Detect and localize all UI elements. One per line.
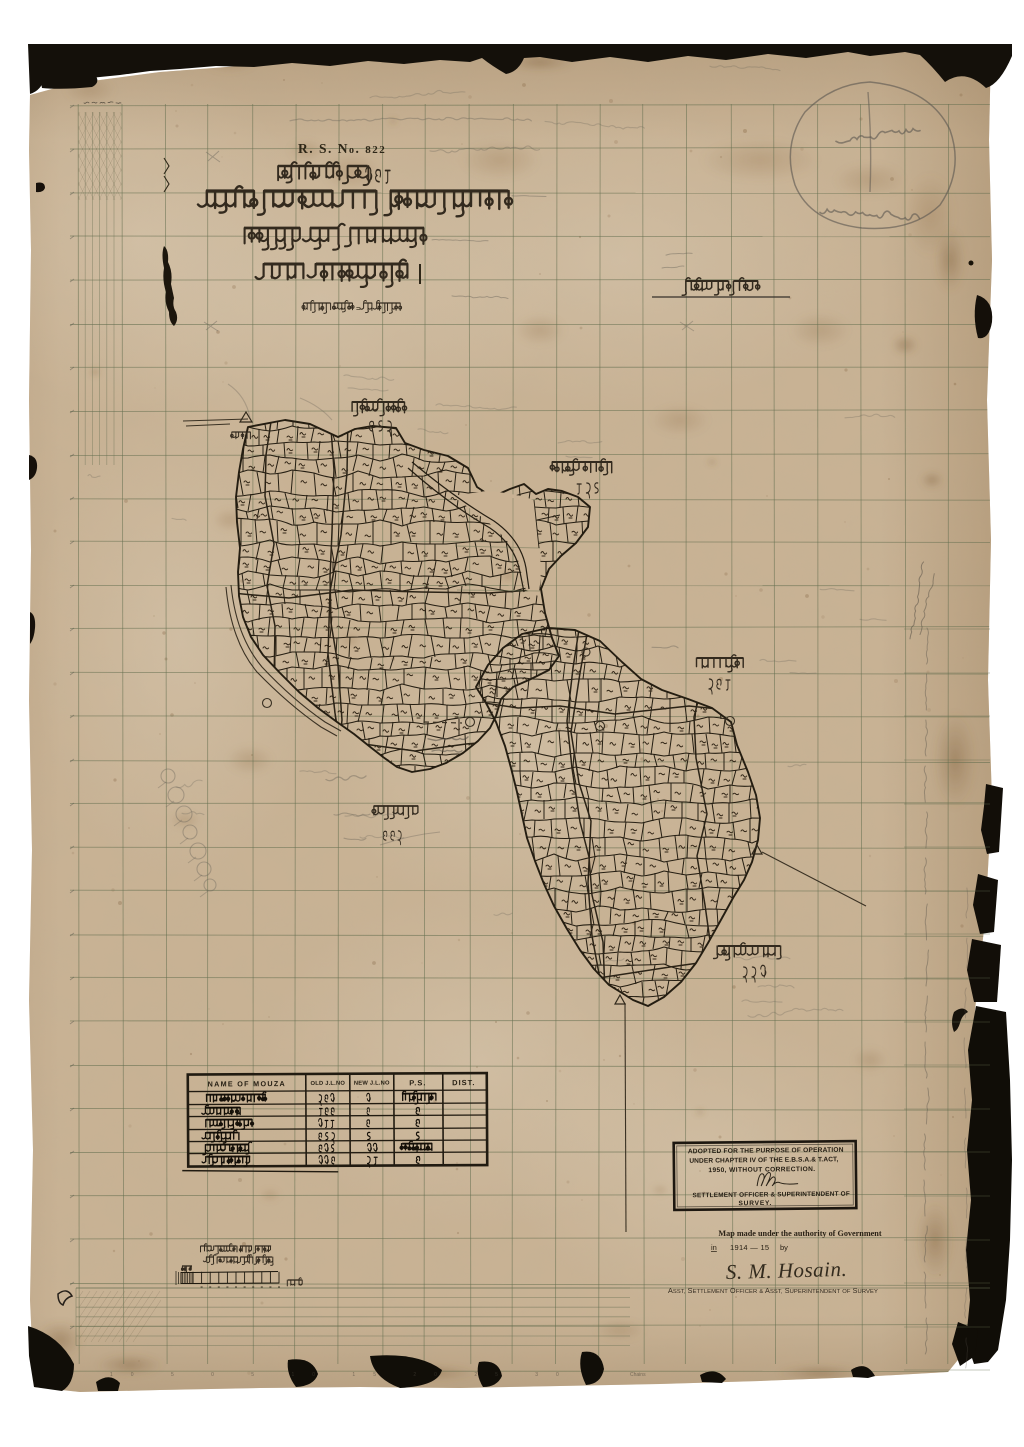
svg-text:R. S. No. 822: R. S. No. 822 (298, 141, 386, 156)
svg-text:DIST.: DIST. (452, 1078, 475, 1087)
svg-text:Map made under the authority o: Map made under the authority of Governme… (718, 1229, 881, 1238)
svg-text:NEW J.L.NO: NEW J.L.NO (354, 1081, 390, 1087)
svg-text:S. M. Hosain.: S. M. Hosain. (726, 1257, 848, 1284)
svg-text:SURVEY.: SURVEY. (738, 1200, 772, 1207)
svg-text:10 5 0 5 10 15 20 25 30: 10 5 0 5 10 15 20 25 30 (110, 1372, 577, 1378)
svg-text:Chains: Chains (630, 1372, 646, 1378)
svg-text:1914 — 15: 1914 — 15 (730, 1243, 769, 1252)
svg-text:in: in (711, 1243, 717, 1252)
svg-text:OLD J.L.NO: OLD J.L.NO (311, 1081, 346, 1087)
svg-text:NAME OF MOUZA: NAME OF MOUZA (208, 1079, 286, 1088)
svg-text:1950, WITHOUT CORRECTION.: 1950, WITHOUT CORRECTION. (708, 1166, 815, 1174)
svg-text:P.S.: P.S. (409, 1078, 426, 1087)
svg-text:by: by (780, 1243, 788, 1252)
